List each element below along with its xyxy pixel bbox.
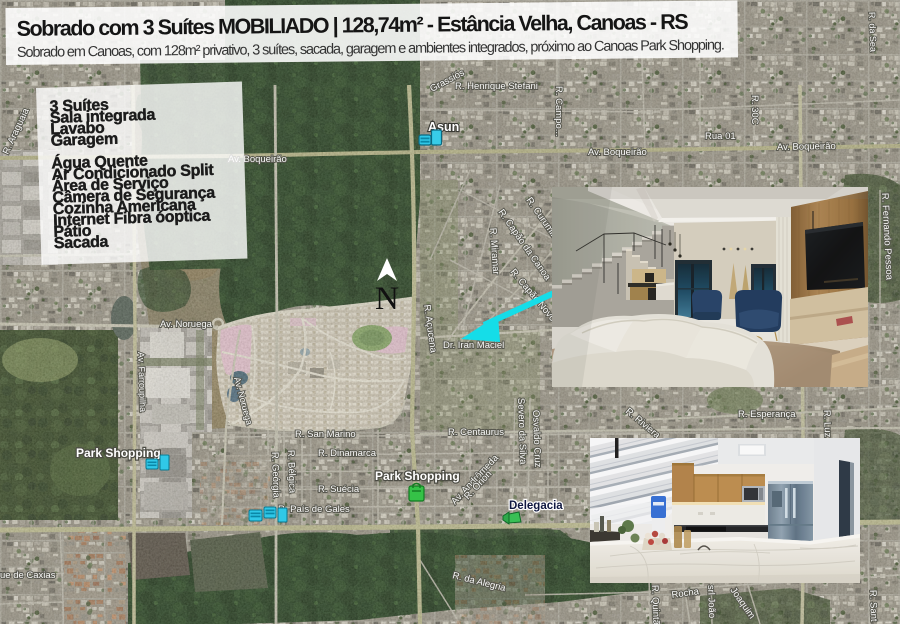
svg-text:Sacada: Sacada — [54, 234, 109, 253]
svg-text:Garagem: Garagem — [50, 131, 118, 150]
